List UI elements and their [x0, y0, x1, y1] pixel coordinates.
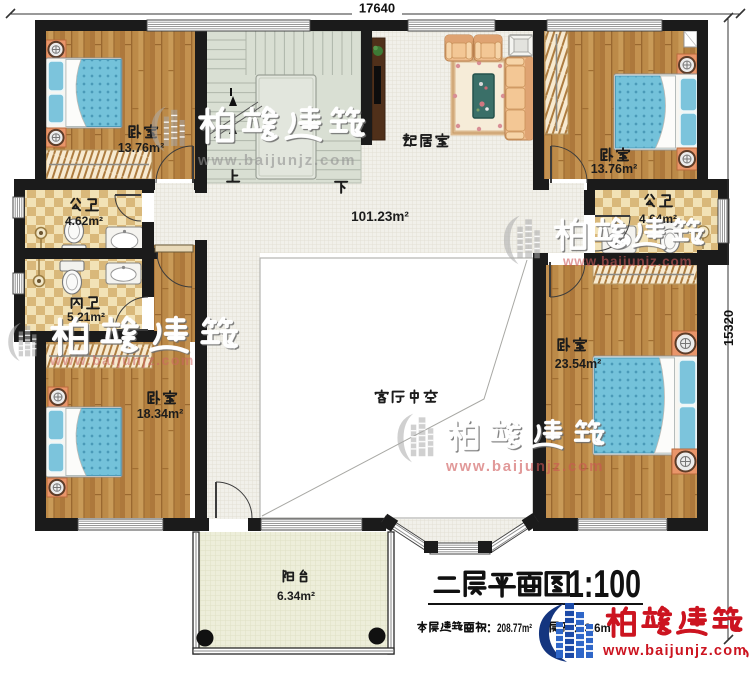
- svg-text:101.23m²: 101.23m²: [351, 209, 409, 224]
- svg-text:www.baijunjz.com: www.baijunjz.com: [562, 254, 692, 269]
- svg-text:208.77m²: 208.77m²: [497, 621, 532, 635]
- svg-text:15320: 15320: [721, 310, 736, 346]
- svg-text:4.62m²: 4.62m²: [65, 214, 103, 228]
- svg-text:23.54m²: 23.54m²: [555, 357, 602, 371]
- svg-text:1:100: 1:100: [568, 563, 641, 606]
- svg-text:www.baijunjz.com: www.baijunjz.com: [445, 458, 604, 475]
- svg-text:18.34m²: 18.34m²: [137, 407, 184, 421]
- svg-text:6.34m²: 6.34m²: [277, 589, 315, 603]
- svg-text:www.baijunjz.com: www.baijunjz.com: [602, 643, 747, 659]
- svg-text:13.76m²: 13.76m²: [591, 162, 638, 176]
- svg-text:www.baijunjz.com: www.baijunjz.com: [197, 152, 356, 169]
- svg-text:www.baijunjz.com: www.baijunjz.com: [49, 352, 195, 368]
- svg-text:17640: 17640: [359, 1, 395, 16]
